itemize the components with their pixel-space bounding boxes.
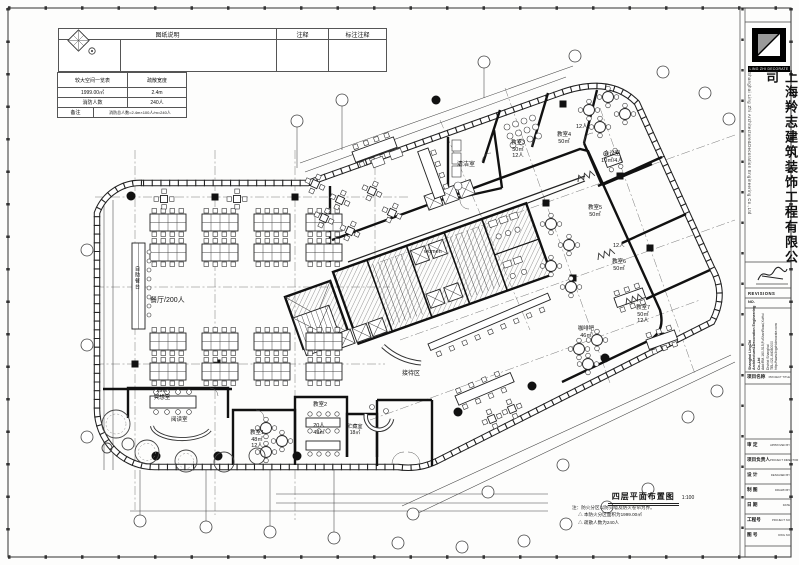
- tb-row7-cn: 图 号: [747, 532, 757, 538]
- note-1: 注：防火分区以防火墙及防火卷帘为界。: [572, 504, 655, 511]
- fire-r1c0: 1999.00㎡: [58, 88, 128, 98]
- service-core: [285, 180, 552, 356]
- address-web: http://www.lingzhidecorate.com: [774, 302, 778, 370]
- cls6-name: 教室6: [606, 259, 632, 266]
- legend-body-blank1: [121, 40, 277, 71]
- address-name: Shanghai LingZhi Architecture&Decoration…: [748, 302, 761, 370]
- label-women-wc: women: [424, 249, 442, 256]
- cls3-name: 教室3: [505, 140, 531, 147]
- drawing-title-block: 四层平面布置图1:100: [563, 486, 739, 506]
- fire-r1c1: 2.4m: [128, 88, 186, 98]
- label-classroom4: 教室4 50㎡: [551, 132, 577, 145]
- tb-row1-en: APPROVED BY: [770, 443, 790, 447]
- tb-row-date: 日 期 DATE: [747, 502, 790, 508]
- company-address: Shanghai LingZhi Architecture&Decoration…: [748, 302, 778, 370]
- label-classroom6: 教室6 50㎡: [606, 259, 632, 272]
- tb-row0-cn: 项目名称: [747, 374, 765, 380]
- cls5-area: 50㎡: [582, 212, 608, 219]
- cls4-name: 教室4: [551, 132, 577, 139]
- company-name-cn: 上海羚志建筑装饰工程有限公司: [762, 70, 799, 266]
- tb-row4-en: DRAWN BY: [775, 488, 790, 492]
- tb-row-project-no: 工程号 PROJECT NO: [747, 517, 790, 523]
- note-2: △ 本防火分区面积为1999.00㎡: [572, 511, 655, 518]
- cls1-cap: 12人: [243, 443, 271, 450]
- tb-row6-en: PROJECT NO: [772, 518, 790, 522]
- tb-row1-cn: 审 定: [747, 442, 757, 448]
- address-line1: Add:RM.160-515,FuShanRoad,XuHui District…: [761, 302, 770, 370]
- legend-table: 图纸说明 注释 标注注释: [58, 28, 387, 72]
- label-reading-room: 阅读室: [171, 417, 188, 424]
- fire-r2c1: 240人: [128, 98, 186, 108]
- tb-row-drawn: 制 图 DRAWN BY: [747, 487, 790, 493]
- cls1-name: 教室1: [243, 430, 271, 437]
- tb-row4-cn: 制 图: [747, 487, 757, 493]
- label-classroom2: 教室2: [306, 402, 334, 409]
- label-classroom5-cap: 12人: [613, 243, 625, 250]
- label-classroom4-cap: 12人: [576, 124, 588, 131]
- label-storage: 贮藏室 18㎡: [344, 424, 366, 436]
- tb-row-design: 设 计 DESIGNED BY: [747, 472, 790, 478]
- cls2-cap: 20人: [305, 423, 333, 430]
- cafe-area: 46㎡: [572, 333, 600, 340]
- tb-row0-en: PROJECT TITLE: [769, 375, 790, 379]
- note-3: △ 疏散人数为240人: [572, 519, 655, 526]
- drawing-sheet: 图纸说明 注释 标注注释 较大空间一览表 疏散宽度 1999.00㎡ 2.4m …: [0, 0, 799, 565]
- tb-row6-cn: 工程号: [747, 517, 761, 523]
- drawing-notes: 注：防火分区以防火墙及防火卷帘为界。 △ 本防火分区面积为1999.00㎡ △ …: [572, 504, 655, 526]
- fire-r3c1: 消防总人数=2.4m×100人/m=240人: [94, 108, 186, 117]
- tb-row2-cn: 项目负责人: [747, 457, 770, 463]
- cls4-area: 50㎡: [551, 139, 577, 146]
- cls3-cap: 12人: [505, 153, 531, 160]
- label-cleaning-room: 清洁室: [457, 162, 475, 169]
- cls6-area: 50㎡: [606, 266, 632, 273]
- classroom-tables: [576, 147, 680, 355]
- revisions-label: REVISIONS: [748, 291, 775, 296]
- label-classroom7: 教室7 50㎡ 12人: [630, 305, 656, 325]
- label-buffet-counter: 自助餐台: [134, 266, 141, 324]
- meeting-spec: 10㎡/4人: [595, 158, 629, 165]
- legend-col3: 标注注释: [329, 29, 386, 40]
- cls7-name: 教室7: [630, 305, 656, 312]
- tb-row3-en: DESIGNED BY: [771, 473, 790, 477]
- drawing-scale: 1:100: [682, 495, 695, 501]
- label-classroom3: 教室3 50㎡ 12人: [505, 140, 531, 160]
- cafe-name: 咖啡吧: [572, 326, 600, 333]
- label-classroom5: 教室5 50㎡: [582, 205, 608, 218]
- cls7-cap: 12人: [630, 318, 656, 325]
- tb-row-project-title: 项目名称 PROJECT TITLE: [747, 374, 790, 380]
- fire-r0c0: 较大空间一览表: [58, 73, 128, 88]
- meditation-area: 29㎡: [140, 388, 184, 395]
- label-meditation: 29㎡ 冥想室: [140, 388, 184, 401]
- tb-row5-en: DATE: [783, 503, 790, 507]
- tb-row3-cn: 设 计: [747, 472, 757, 478]
- cls2-area: 43㎡: [305, 430, 333, 437]
- tb-row-approved: 审 定 APPROVED BY: [747, 442, 790, 448]
- meeting-name: 会议室: [595, 151, 629, 158]
- tb-row7-en: DWG NO: [778, 533, 790, 537]
- label-canteen: 餐厅/200人: [150, 297, 185, 305]
- fire-r0c1: 疏散宽度: [128, 73, 186, 88]
- tb-row-director: 项目负责人 PROJECT DIRECTOR: [747, 457, 790, 463]
- tb-row2-en: PROJECT DIRECTOR: [770, 458, 798, 462]
- cls5-name: 教室5: [582, 205, 608, 212]
- legend-body-blank3: [329, 40, 386, 71]
- tb-row5-cn: 日 期: [747, 502, 757, 508]
- tb-row-dwg-no: 图 号 DWG NO: [747, 532, 790, 538]
- keyplan-cell: [59, 40, 121, 71]
- label-cafe: 咖啡吧 46㎡: [572, 326, 600, 339]
- fire-r2c0: 消防人数: [58, 98, 128, 108]
- label-meeting-room: 会议室 10㎡/4人: [595, 151, 629, 164]
- keyplan-diamond: [59, 40, 119, 59]
- fire-r3c0: 备注: [58, 108, 94, 117]
- storage-area: 18㎡: [344, 430, 366, 436]
- meditation-name: 冥想室: [140, 395, 184, 402]
- company-name-en: Shanghai Ling Zhi Architecture&Decoratio…: [747, 72, 752, 262]
- fire-table: 较大空间一览表 疏散宽度 1999.00㎡ 2.4m 消防人数 240人 备注 …: [57, 72, 187, 118]
- label-classroom2-spec: 20人 43㎡: [305, 423, 333, 436]
- label-classroom1: 教室1 48㎡ 12人: [243, 430, 271, 450]
- legend-col2: 注释: [277, 29, 329, 40]
- label-reception: 接待区: [402, 371, 420, 378]
- legend-body-blank2: [277, 40, 329, 71]
